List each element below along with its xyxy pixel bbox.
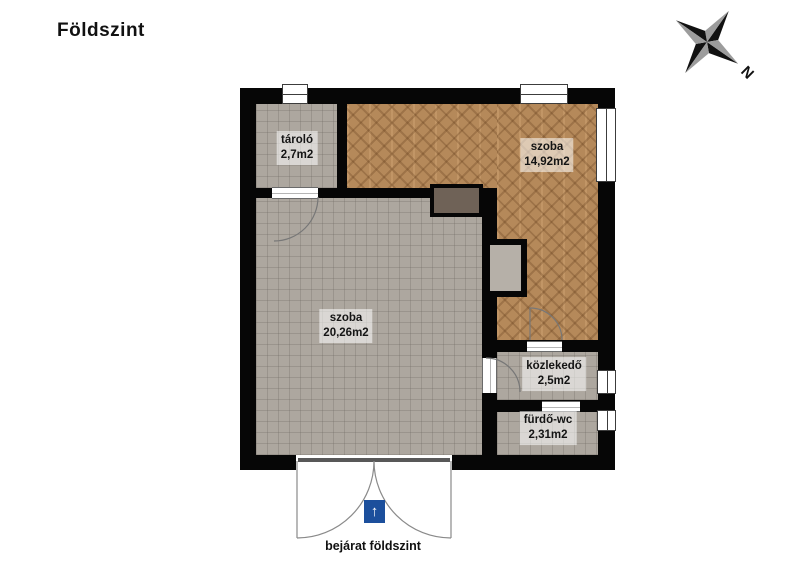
room-area: 2,7m2	[281, 148, 314, 163]
arc-entrance-left	[297, 461, 374, 538]
window-kozlekedo-right	[597, 370, 616, 394]
room-area: 2,5m2	[526, 374, 582, 389]
page-title: Földszint	[57, 20, 145, 42]
fireplace	[434, 188, 479, 213]
room-name: közlekedő	[526, 359, 582, 374]
door-tarolo	[272, 187, 318, 199]
room-label-tarolo: tároló 2,7m2	[277, 131, 318, 165]
arrow-up-glyph: ↑	[371, 504, 379, 519]
room-name: fürdő-wc	[524, 413, 573, 428]
arc-entrance-right	[374, 461, 451, 538]
room-label-kozlekedo: közlekedő 2,5m2	[522, 357, 586, 391]
room-area: 14,92m2	[524, 155, 569, 170]
room-name: szoba	[323, 311, 368, 326]
compass-rose: N	[665, 0, 775, 95]
room-label-szoba-nagy: szoba 20,26m2	[319, 309, 372, 343]
room-label-furdo-wc: fürdő-wc 2,31m2	[520, 411, 577, 445]
window-tarolo-top	[282, 84, 308, 104]
room-name: tároló	[281, 133, 314, 148]
entrance-threshold	[298, 458, 450, 462]
room-area: 2,31m2	[524, 428, 573, 443]
door-kozlekedo	[482, 358, 497, 393]
arrow-up-icon: ↑	[364, 500, 385, 523]
compass-north-label: N	[737, 63, 757, 83]
room-area: 20,26m2	[323, 326, 368, 341]
room-name: szoba	[524, 140, 569, 155]
interior-wall-vertical	[482, 188, 497, 455]
room-label-szoba-felso: szoba 14,92m2	[520, 138, 573, 172]
entrance-label: bejárat földszint	[325, 539, 421, 553]
floorplan-page: Földszint N	[0, 0, 800, 565]
window-furdo-right	[597, 410, 616, 431]
window-szoba-felso-top	[520, 84, 568, 104]
interior-wall-tarolo-szoba	[337, 104, 347, 188]
niche	[490, 245, 521, 291]
window-szoba-felso-right	[596, 108, 616, 182]
door-szoba-felso	[527, 341, 562, 352]
